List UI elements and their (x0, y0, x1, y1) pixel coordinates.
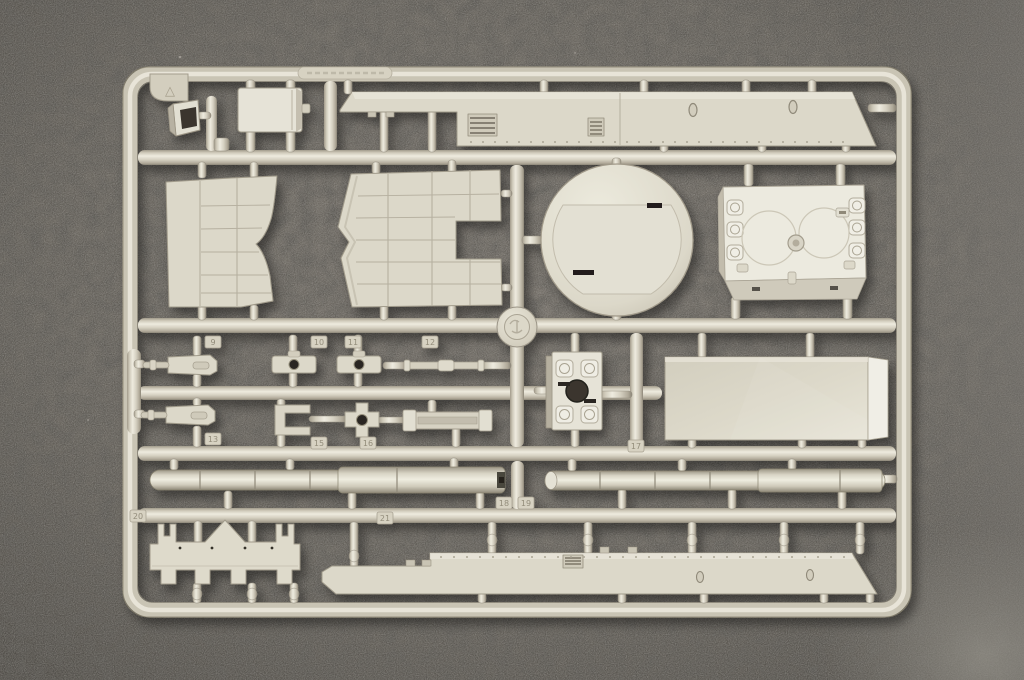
channel-strip (403, 410, 492, 431)
part-number-label: 13 (208, 435, 218, 444)
background-light-corner-patch (820, 520, 1024, 680)
photo-of-model-kit-sprue: Light grey injection-moulded plastic mod… (0, 0, 1024, 680)
part-number-tag: 12 (422, 336, 438, 348)
part-number-tag: 17 (628, 440, 644, 452)
part-number-label: 12 (425, 338, 435, 347)
sprue-medallion (497, 307, 537, 347)
vent-grille (588, 118, 604, 136)
corner-tab: △ (150, 74, 188, 101)
part-number-tag: 11 (345, 336, 361, 348)
part-number-tag: 15 (311, 437, 327, 449)
part-number-label: 21 (380, 514, 390, 523)
gun-barrel-half-upper (150, 467, 505, 493)
hatch-panel (238, 88, 310, 132)
part-number-label: 10 (314, 338, 324, 347)
part-number-label: 11 (348, 338, 358, 347)
disc-slot (573, 270, 594, 275)
part-number-label: 19 (521, 499, 531, 508)
hull-roof-box (718, 185, 866, 300)
sprue-triangle-mark: △ (165, 84, 175, 99)
part-number-label: 15 (314, 439, 324, 448)
dust-speck (574, 52, 576, 54)
part-number-tag: 21 (377, 512, 393, 524)
part-number-tag: 20 (130, 510, 146, 522)
part-number-tag: 9 (205, 336, 221, 348)
dust-speck (179, 56, 182, 59)
part-number-label: 20 (133, 512, 143, 521)
gun-barrel-half-lower (545, 469, 885, 492)
part-number-tag: 16 (360, 437, 376, 449)
part-number-tag: 10 (311, 336, 327, 348)
part-number-tag: 13 (205, 433, 221, 445)
part-number-tag: 19 (518, 497, 534, 509)
dust-speck (87, 419, 89, 421)
part-number-tag: 18 (496, 497, 512, 509)
embossed-text-plate (298, 67, 392, 79)
periscope-block (168, 100, 200, 136)
disc-slot (647, 203, 662, 208)
part-number-label: 16 (363, 439, 373, 448)
turret-base-block (546, 352, 602, 430)
rear-panel (665, 357, 888, 440)
sprue-photo-canvas: △ (0, 0, 1024, 680)
turret-ring-disc (541, 164, 693, 316)
part-number-label: 17 (631, 442, 641, 451)
part-number-label: 9 (210, 338, 215, 347)
linkage-rod (404, 360, 484, 371)
part-number-label: 18 (499, 499, 509, 508)
